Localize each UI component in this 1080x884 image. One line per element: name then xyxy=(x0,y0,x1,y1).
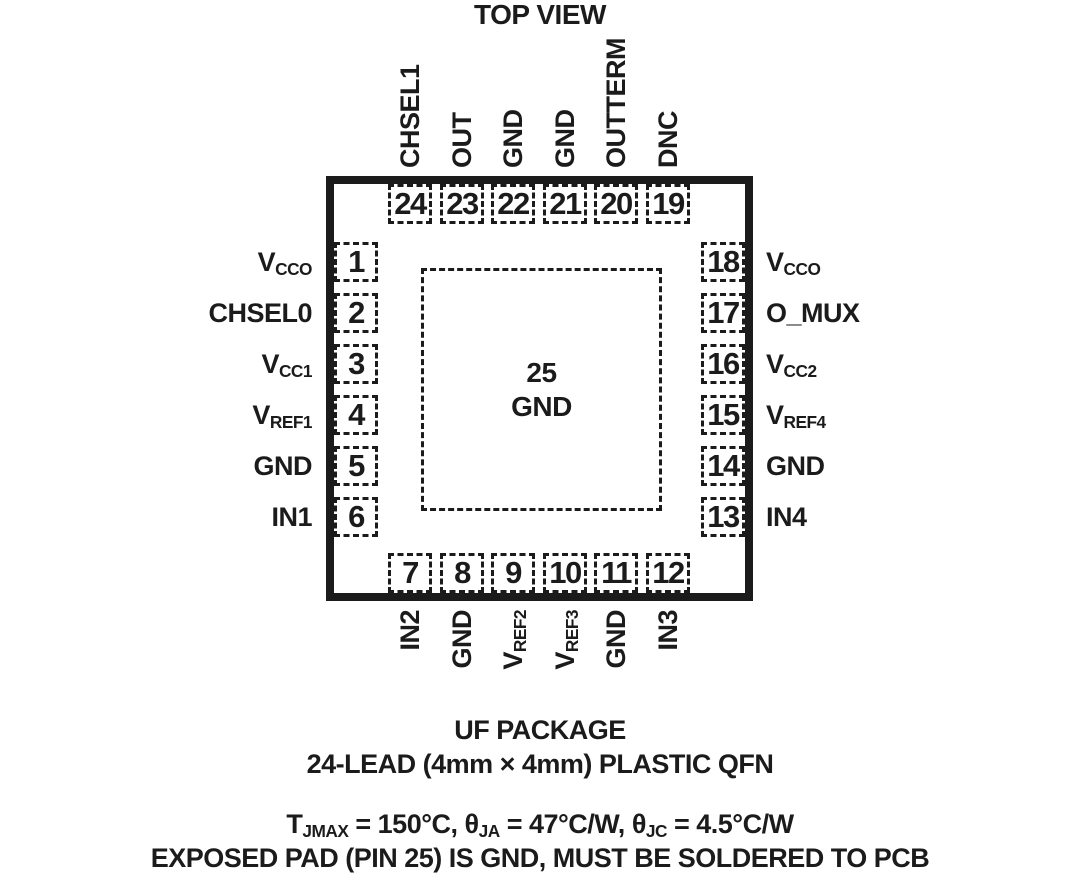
pin-19-label: DNC xyxy=(655,3,684,168)
pin-19-number: 19 xyxy=(652,186,683,222)
diagram-title: TOP VIEW xyxy=(0,0,1080,30)
pin-2-box: 2 xyxy=(334,293,378,333)
pin-16-label: VCC2 xyxy=(766,349,1046,382)
pin-6-label: IN1 xyxy=(40,502,312,535)
pin-8-number: 8 xyxy=(454,555,470,591)
pin-17-number: 17 xyxy=(707,295,738,331)
pin-14-number: 14 xyxy=(707,448,738,484)
pin-23-number: 23 xyxy=(446,186,477,222)
pin-3-box: 3 xyxy=(334,344,378,384)
pin-22-number: 22 xyxy=(497,186,528,222)
pin-6-number: 6 xyxy=(348,499,364,535)
pin-1-box: 1 xyxy=(334,242,378,282)
pin-3-number: 3 xyxy=(348,346,364,382)
exposed-pad-number: 25 xyxy=(526,356,556,390)
pin-24-label: CHSEL1 xyxy=(397,3,426,168)
package-description: 24-LEAD (4mm × 4mm) PLASTIC QFN xyxy=(0,748,1080,780)
pin-15-number: 15 xyxy=(707,397,738,433)
pin-5-number: 5 xyxy=(348,448,364,484)
pin-18-number: 18 xyxy=(707,244,738,280)
pin-1-label: VCCO xyxy=(40,247,312,280)
exposed-pad-note: EXPOSED PAD (PIN 25) IS GND, MUST BE SOL… xyxy=(0,842,1080,874)
pin-22-label: GND xyxy=(500,3,529,168)
pin-5-box: 5 xyxy=(334,446,378,486)
pin-11-box: 11 xyxy=(594,553,638,593)
pin-10-number: 10 xyxy=(549,555,580,591)
exposed-pad: 25 GND xyxy=(421,268,662,511)
pin-24-number: 24 xyxy=(394,186,425,222)
pin-4-label: VREF1 xyxy=(40,400,312,433)
pin-2-number: 2 xyxy=(348,295,364,331)
pin-1-number: 1 xyxy=(348,244,364,280)
pin-7-box: 7 xyxy=(388,553,432,593)
pin-3-label: VCC1 xyxy=(40,349,312,382)
pin-2-label: CHSEL0 xyxy=(40,298,312,331)
pin-4-number: 4 xyxy=(348,397,364,433)
pin-16-number: 16 xyxy=(707,346,738,382)
pin-18-label: VCCO xyxy=(766,247,1046,280)
pin-23-label: OUT xyxy=(449,3,478,168)
pin-19-box: 19 xyxy=(646,184,690,224)
pin-13-number: 13 xyxy=(707,499,738,535)
pin-12-number: 12 xyxy=(652,555,683,591)
pin-24-box: 24 xyxy=(388,184,432,224)
pin-7-number: 7 xyxy=(402,555,418,591)
pin-14-label: GND xyxy=(766,451,1046,484)
pin-21-box: 21 xyxy=(543,184,587,224)
pinout-diagram: TOP VIEW 25 GND 24 23 22 21 20 19 CHSEL1… xyxy=(0,0,1080,884)
pin-23-box: 23 xyxy=(440,184,484,224)
pin-20-box: 20 xyxy=(594,184,638,224)
pin-20-label: OUTTERM xyxy=(603,3,632,168)
pin-5-label: GND xyxy=(40,451,312,484)
pin-4-box: 4 xyxy=(334,395,378,435)
pin-8-box: 8 xyxy=(440,553,484,593)
pin-9-number: 9 xyxy=(505,555,521,591)
pin-18-box: 18 xyxy=(701,242,745,282)
package-name: UF PACKAGE xyxy=(0,714,1080,746)
pin-13-label: IN4 xyxy=(766,502,1046,535)
pin-20-number: 20 xyxy=(600,186,631,222)
pin-21-label: GND xyxy=(552,3,581,168)
pin-15-label: VREF4 xyxy=(766,400,1046,433)
pin-10-box: 10 xyxy=(543,553,587,593)
exposed-pad-label: GND xyxy=(511,390,572,424)
pin-22-box: 22 xyxy=(491,184,535,224)
pin-13-box: 13 xyxy=(701,497,745,537)
pin-9-box: 9 xyxy=(491,553,535,593)
pin-17-label: O_MUX xyxy=(766,298,1046,331)
thermal-spec: TJMAX = 150°C, θJA = 47°C/W, θJC = 4.5°C… xyxy=(0,808,1080,843)
pin-6-box: 6 xyxy=(334,497,378,537)
pin-21-number: 21 xyxy=(549,186,580,222)
pin-12-box: 12 xyxy=(646,553,690,593)
pin-15-box: 15 xyxy=(701,395,745,435)
pin-17-box: 17 xyxy=(701,293,745,333)
pin-14-box: 14 xyxy=(701,446,745,486)
pin-11-number: 11 xyxy=(601,555,631,591)
pin-16-box: 16 xyxy=(701,344,745,384)
